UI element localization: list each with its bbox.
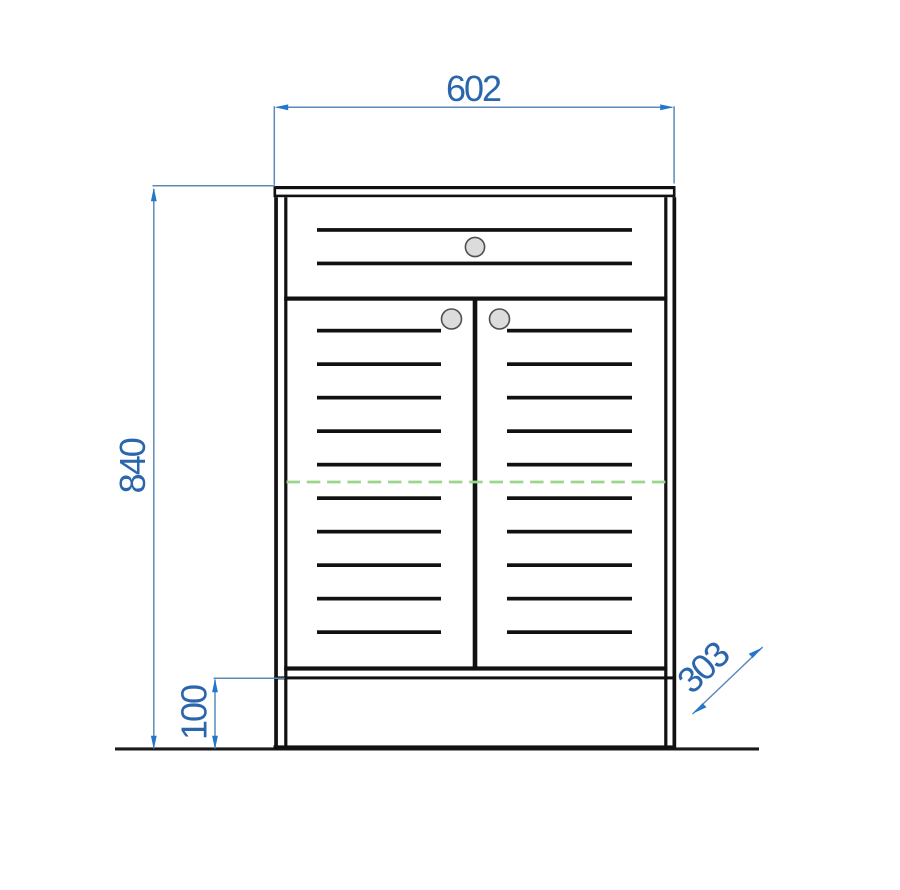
svg-text:100: 100 bbox=[174, 685, 215, 740]
svg-text:602: 602 bbox=[446, 68, 501, 109]
svg-text:840: 840 bbox=[112, 438, 153, 493]
